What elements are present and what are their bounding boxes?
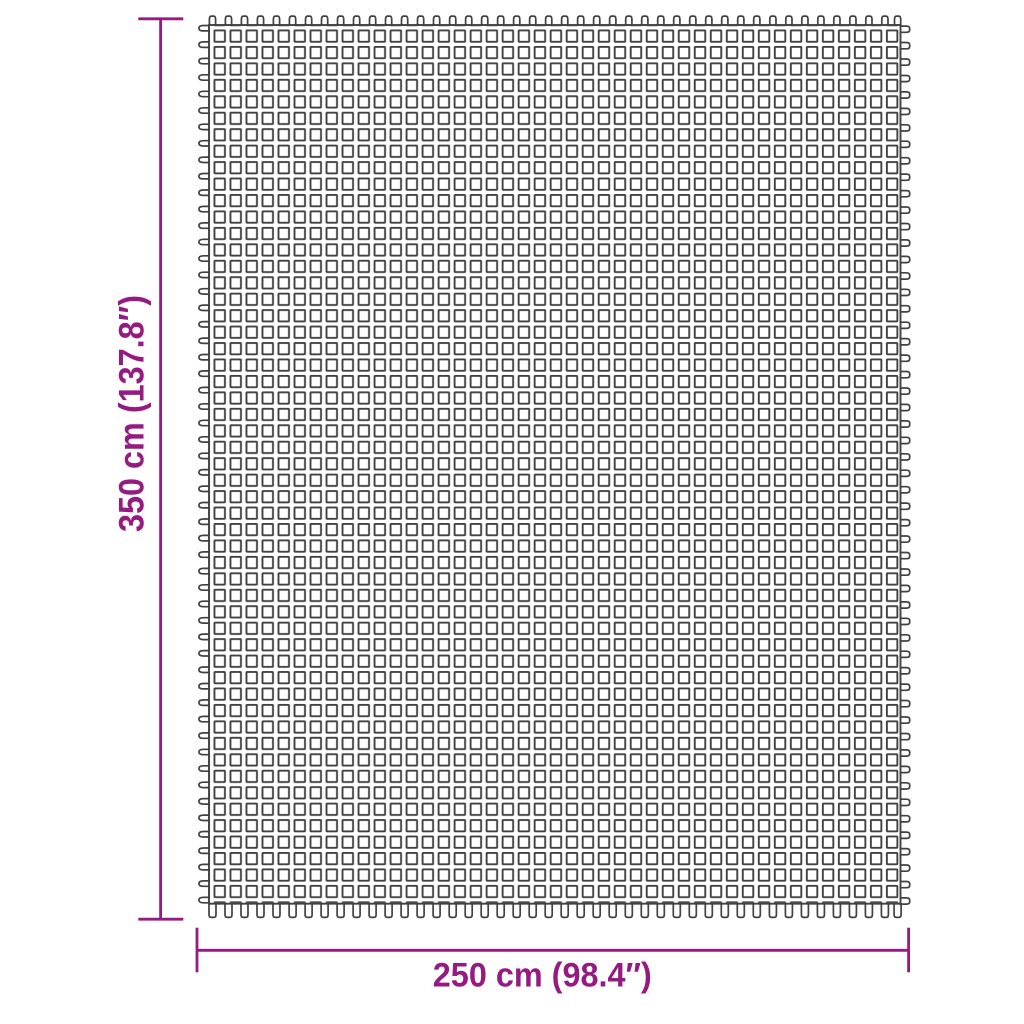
svg-text:250 cm (98.4″): 250 cm (98.4″)	[433, 956, 652, 994]
svg-text:350 cm (137.8″): 350 cm (137.8″)	[112, 295, 151, 532]
